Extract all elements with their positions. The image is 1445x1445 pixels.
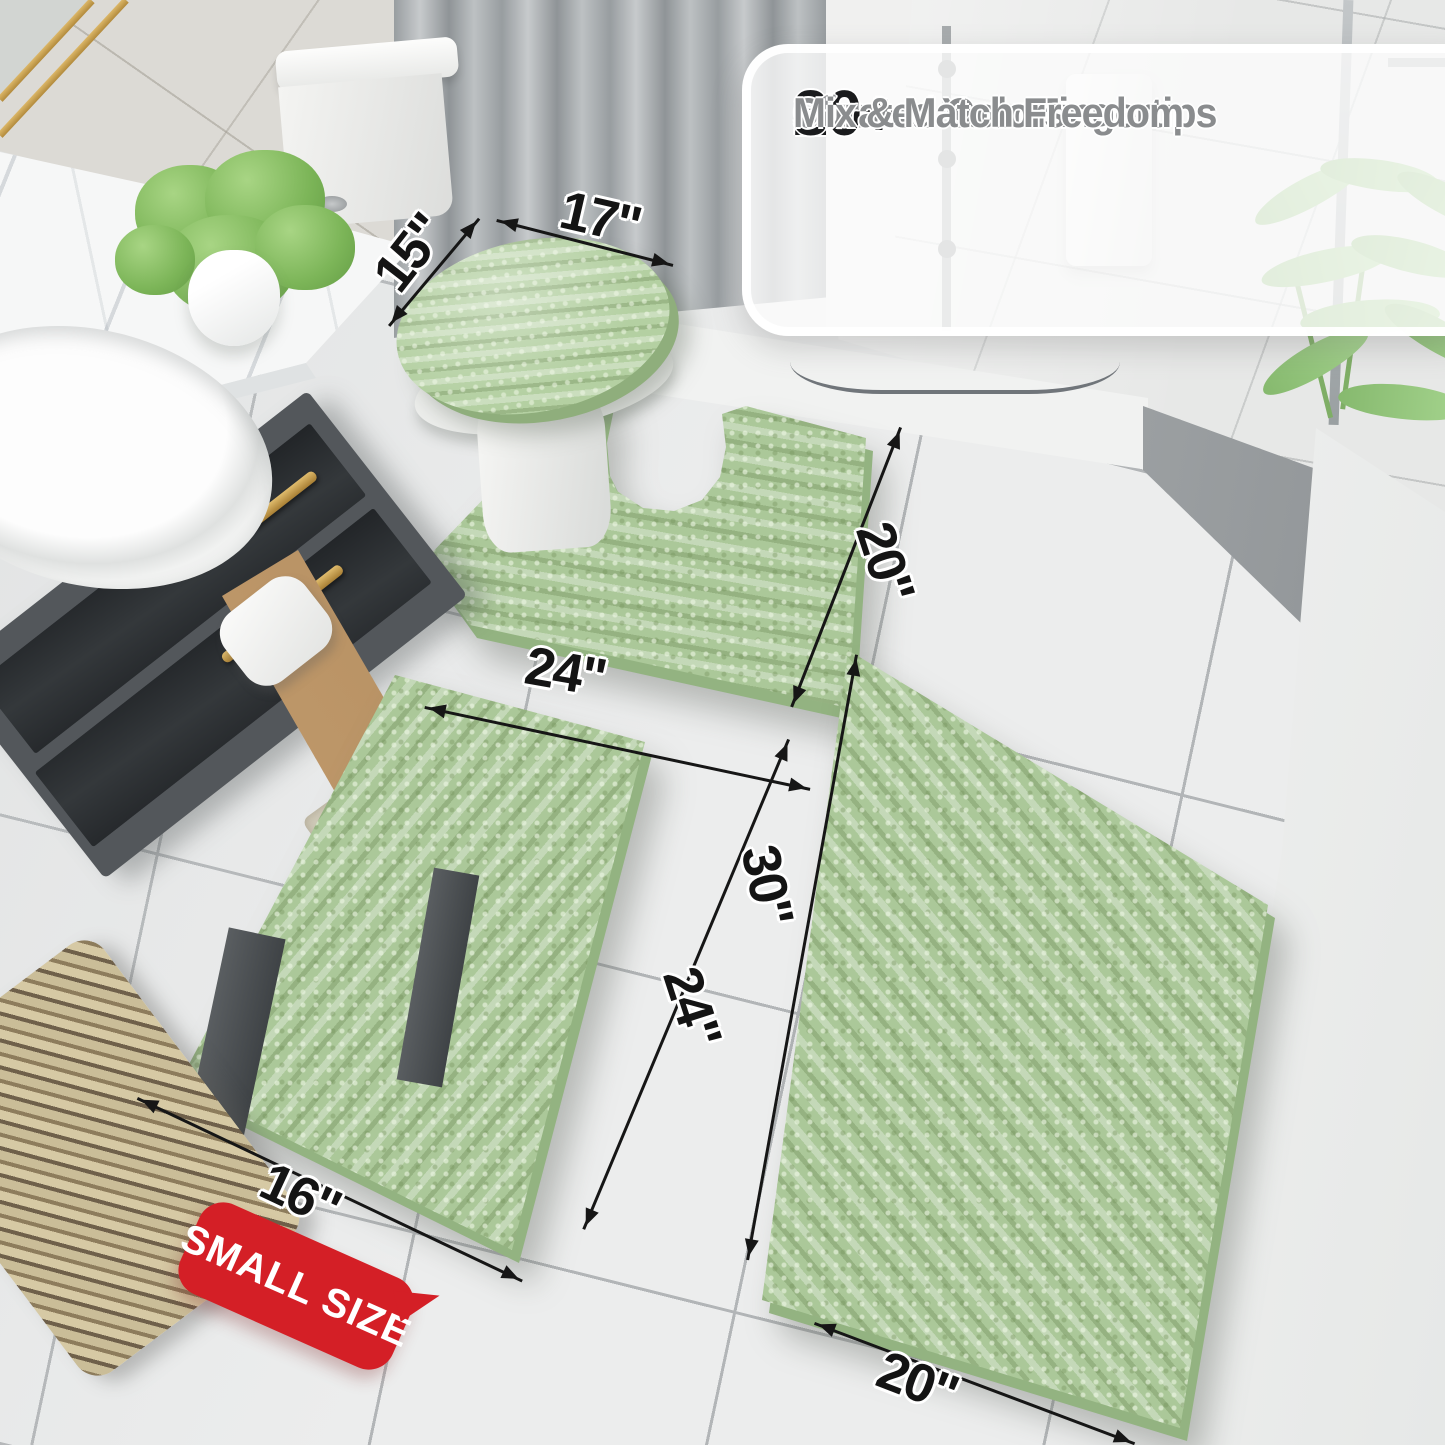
bathroom-product-scene: MISCL ✔ 20+ Sizes at Y [0, 0, 1445, 1445]
feature-callout-box: ✔ 20+ Sizes at Your Fingertips ✔ 30+ Cur… [742, 44, 1445, 336]
feature-label: Mix & Match Freedom [793, 89, 1183, 137]
